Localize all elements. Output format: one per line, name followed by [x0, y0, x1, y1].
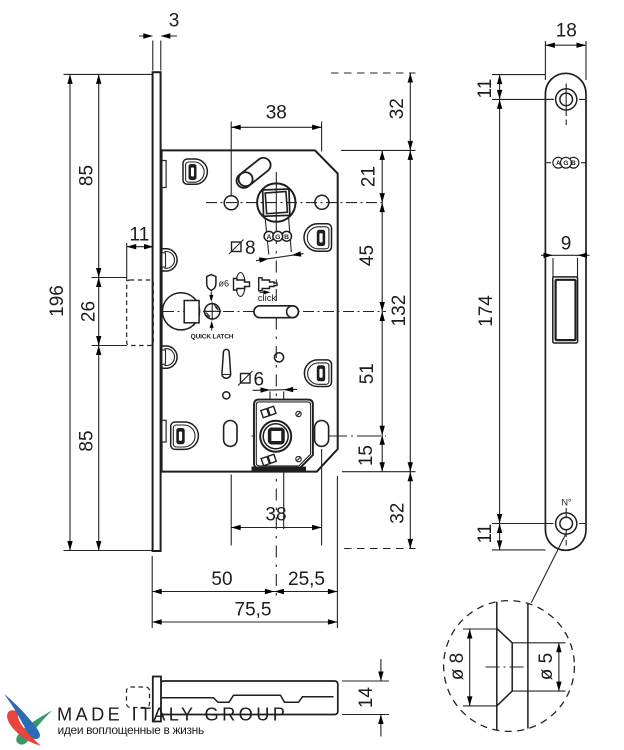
- svg-text:11: 11: [130, 225, 150, 246]
- svg-text:ø6: ø6: [219, 279, 230, 289]
- svg-text:11: 11: [475, 79, 496, 99]
- svg-text:ø 5: ø 5: [536, 653, 557, 680]
- svg-text:85: 85: [77, 165, 98, 186]
- svg-text:18: 18: [556, 21, 577, 42]
- svg-text:A: A: [267, 234, 272, 241]
- svg-text:A: A: [556, 160, 561, 167]
- svg-text:8: 8: [245, 238, 256, 259]
- svg-text:38: 38: [266, 103, 287, 124]
- svg-text:3: 3: [169, 11, 180, 32]
- svg-text:32: 32: [387, 98, 408, 119]
- svg-text:45: 45: [357, 245, 378, 266]
- svg-text:9: 9: [561, 234, 572, 255]
- svg-text:click: click: [258, 293, 277, 304]
- svg-text:51: 51: [357, 363, 378, 384]
- svg-text:ø 8: ø 8: [447, 653, 468, 680]
- svg-text:QUICK LATCH: QUICK LATCH: [191, 334, 234, 341]
- svg-text:B: B: [284, 234, 289, 241]
- svg-text:идеи воплощенные в жизнь: идеи воплощенные в жизнь: [58, 723, 204, 737]
- svg-text:26: 26: [79, 301, 100, 322]
- svg-text:25,5: 25,5: [288, 569, 325, 590]
- svg-text:G: G: [563, 160, 568, 167]
- svg-text:75,5: 75,5: [235, 600, 272, 621]
- svg-text:32: 32: [387, 503, 408, 524]
- svg-text:132: 132: [389, 295, 410, 327]
- svg-text:B: B: [571, 160, 576, 167]
- svg-text:50: 50: [211, 569, 232, 590]
- svg-text:MADE ITALY GROUP: MADE ITALY GROUP: [57, 705, 288, 725]
- svg-text:G: G: [275, 234, 280, 241]
- svg-text:174: 174: [476, 295, 497, 327]
- svg-text:14: 14: [356, 687, 377, 709]
- svg-text:11: 11: [475, 524, 496, 544]
- svg-text:15: 15: [356, 445, 377, 466]
- svg-text:6: 6: [254, 370, 265, 391]
- svg-text:196: 196: [47, 285, 68, 317]
- svg-text:21: 21: [359, 166, 380, 187]
- svg-text:85: 85: [77, 430, 98, 451]
- svg-text:N°: N°: [561, 498, 571, 508]
